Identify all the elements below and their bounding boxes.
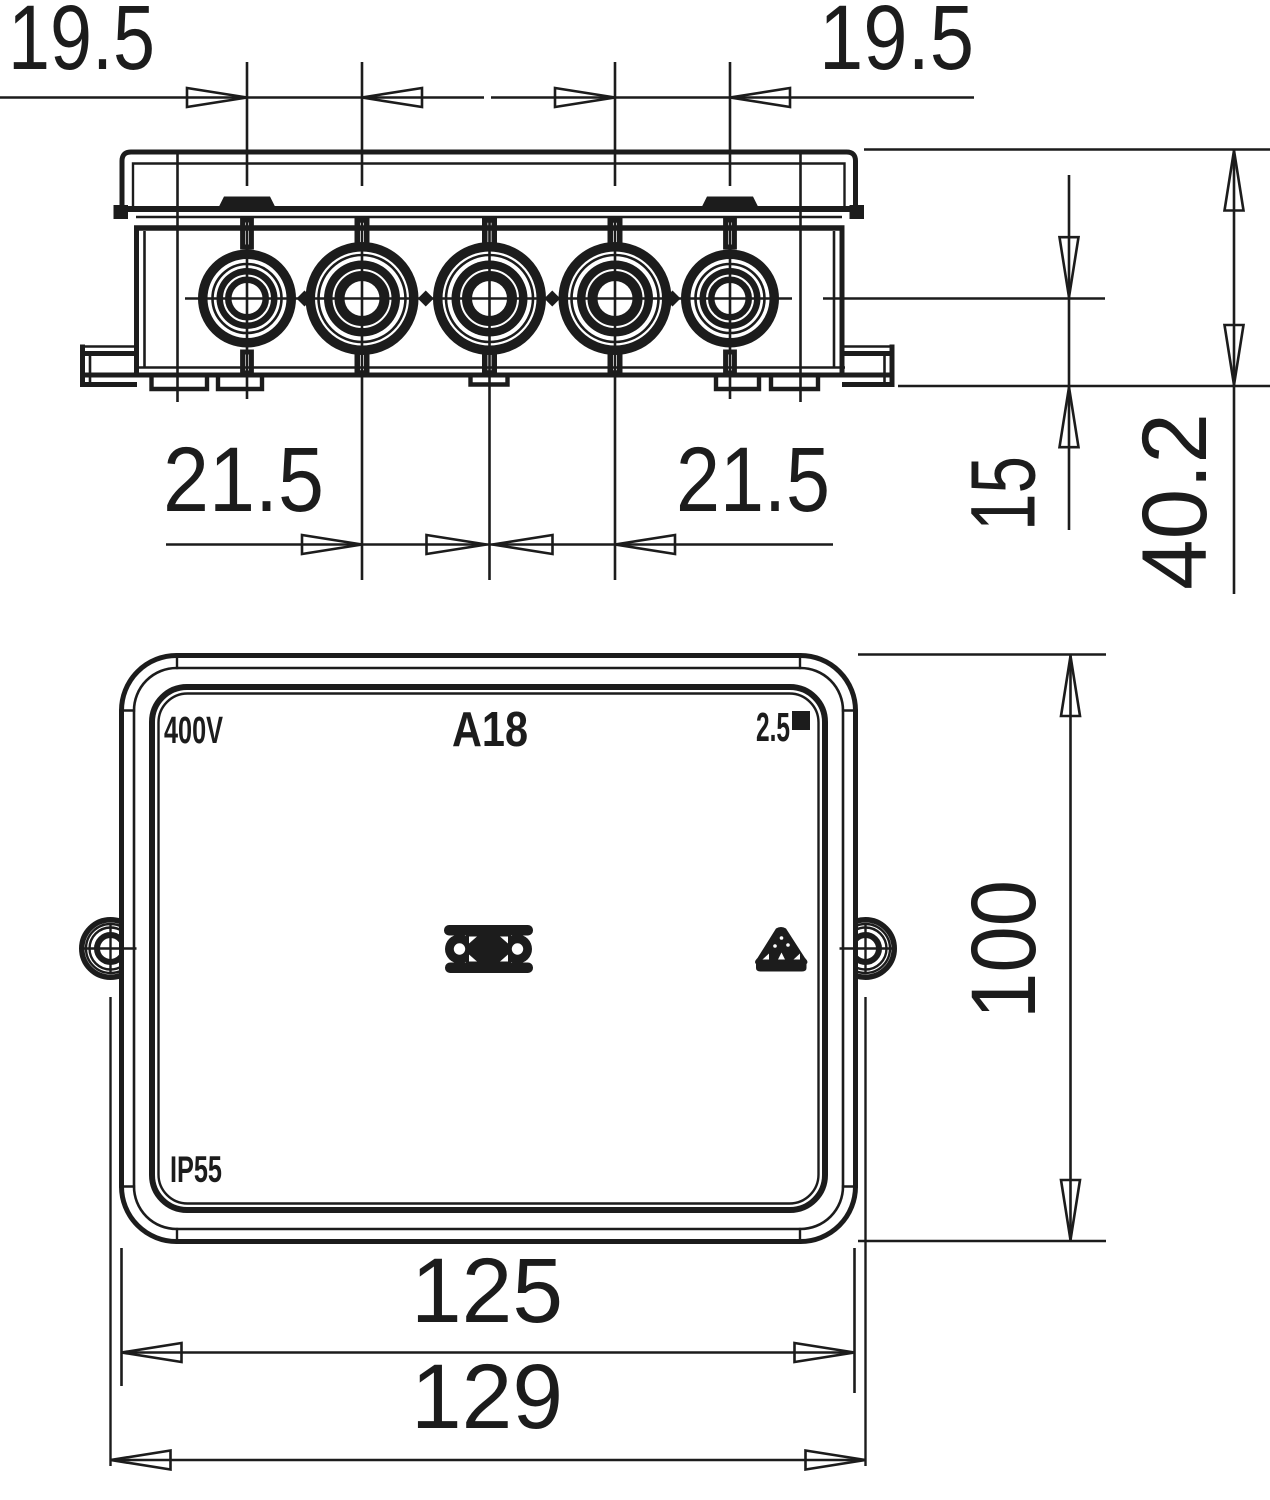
svg-text:100: 100 [953,880,1055,1019]
svg-text:21.5: 21.5 [163,429,324,531]
svg-text:15: 15 [952,456,1054,531]
svg-text:IP55: IP55 [170,1149,222,1190]
svg-text:21.5: 21.5 [676,429,830,531]
svg-text:2.5: 2.5 [756,704,790,750]
svg-text:129: 129 [411,1346,563,1448]
svg-text:A18: A18 [452,703,528,757]
svg-text:125: 125 [411,1240,563,1342]
svg-text:19.5: 19.5 [819,0,974,89]
svg-text:19.5: 19.5 [8,0,155,89]
svg-text:40.2: 40.2 [1124,413,1226,590]
svg-text:400V: 400V [164,710,223,752]
